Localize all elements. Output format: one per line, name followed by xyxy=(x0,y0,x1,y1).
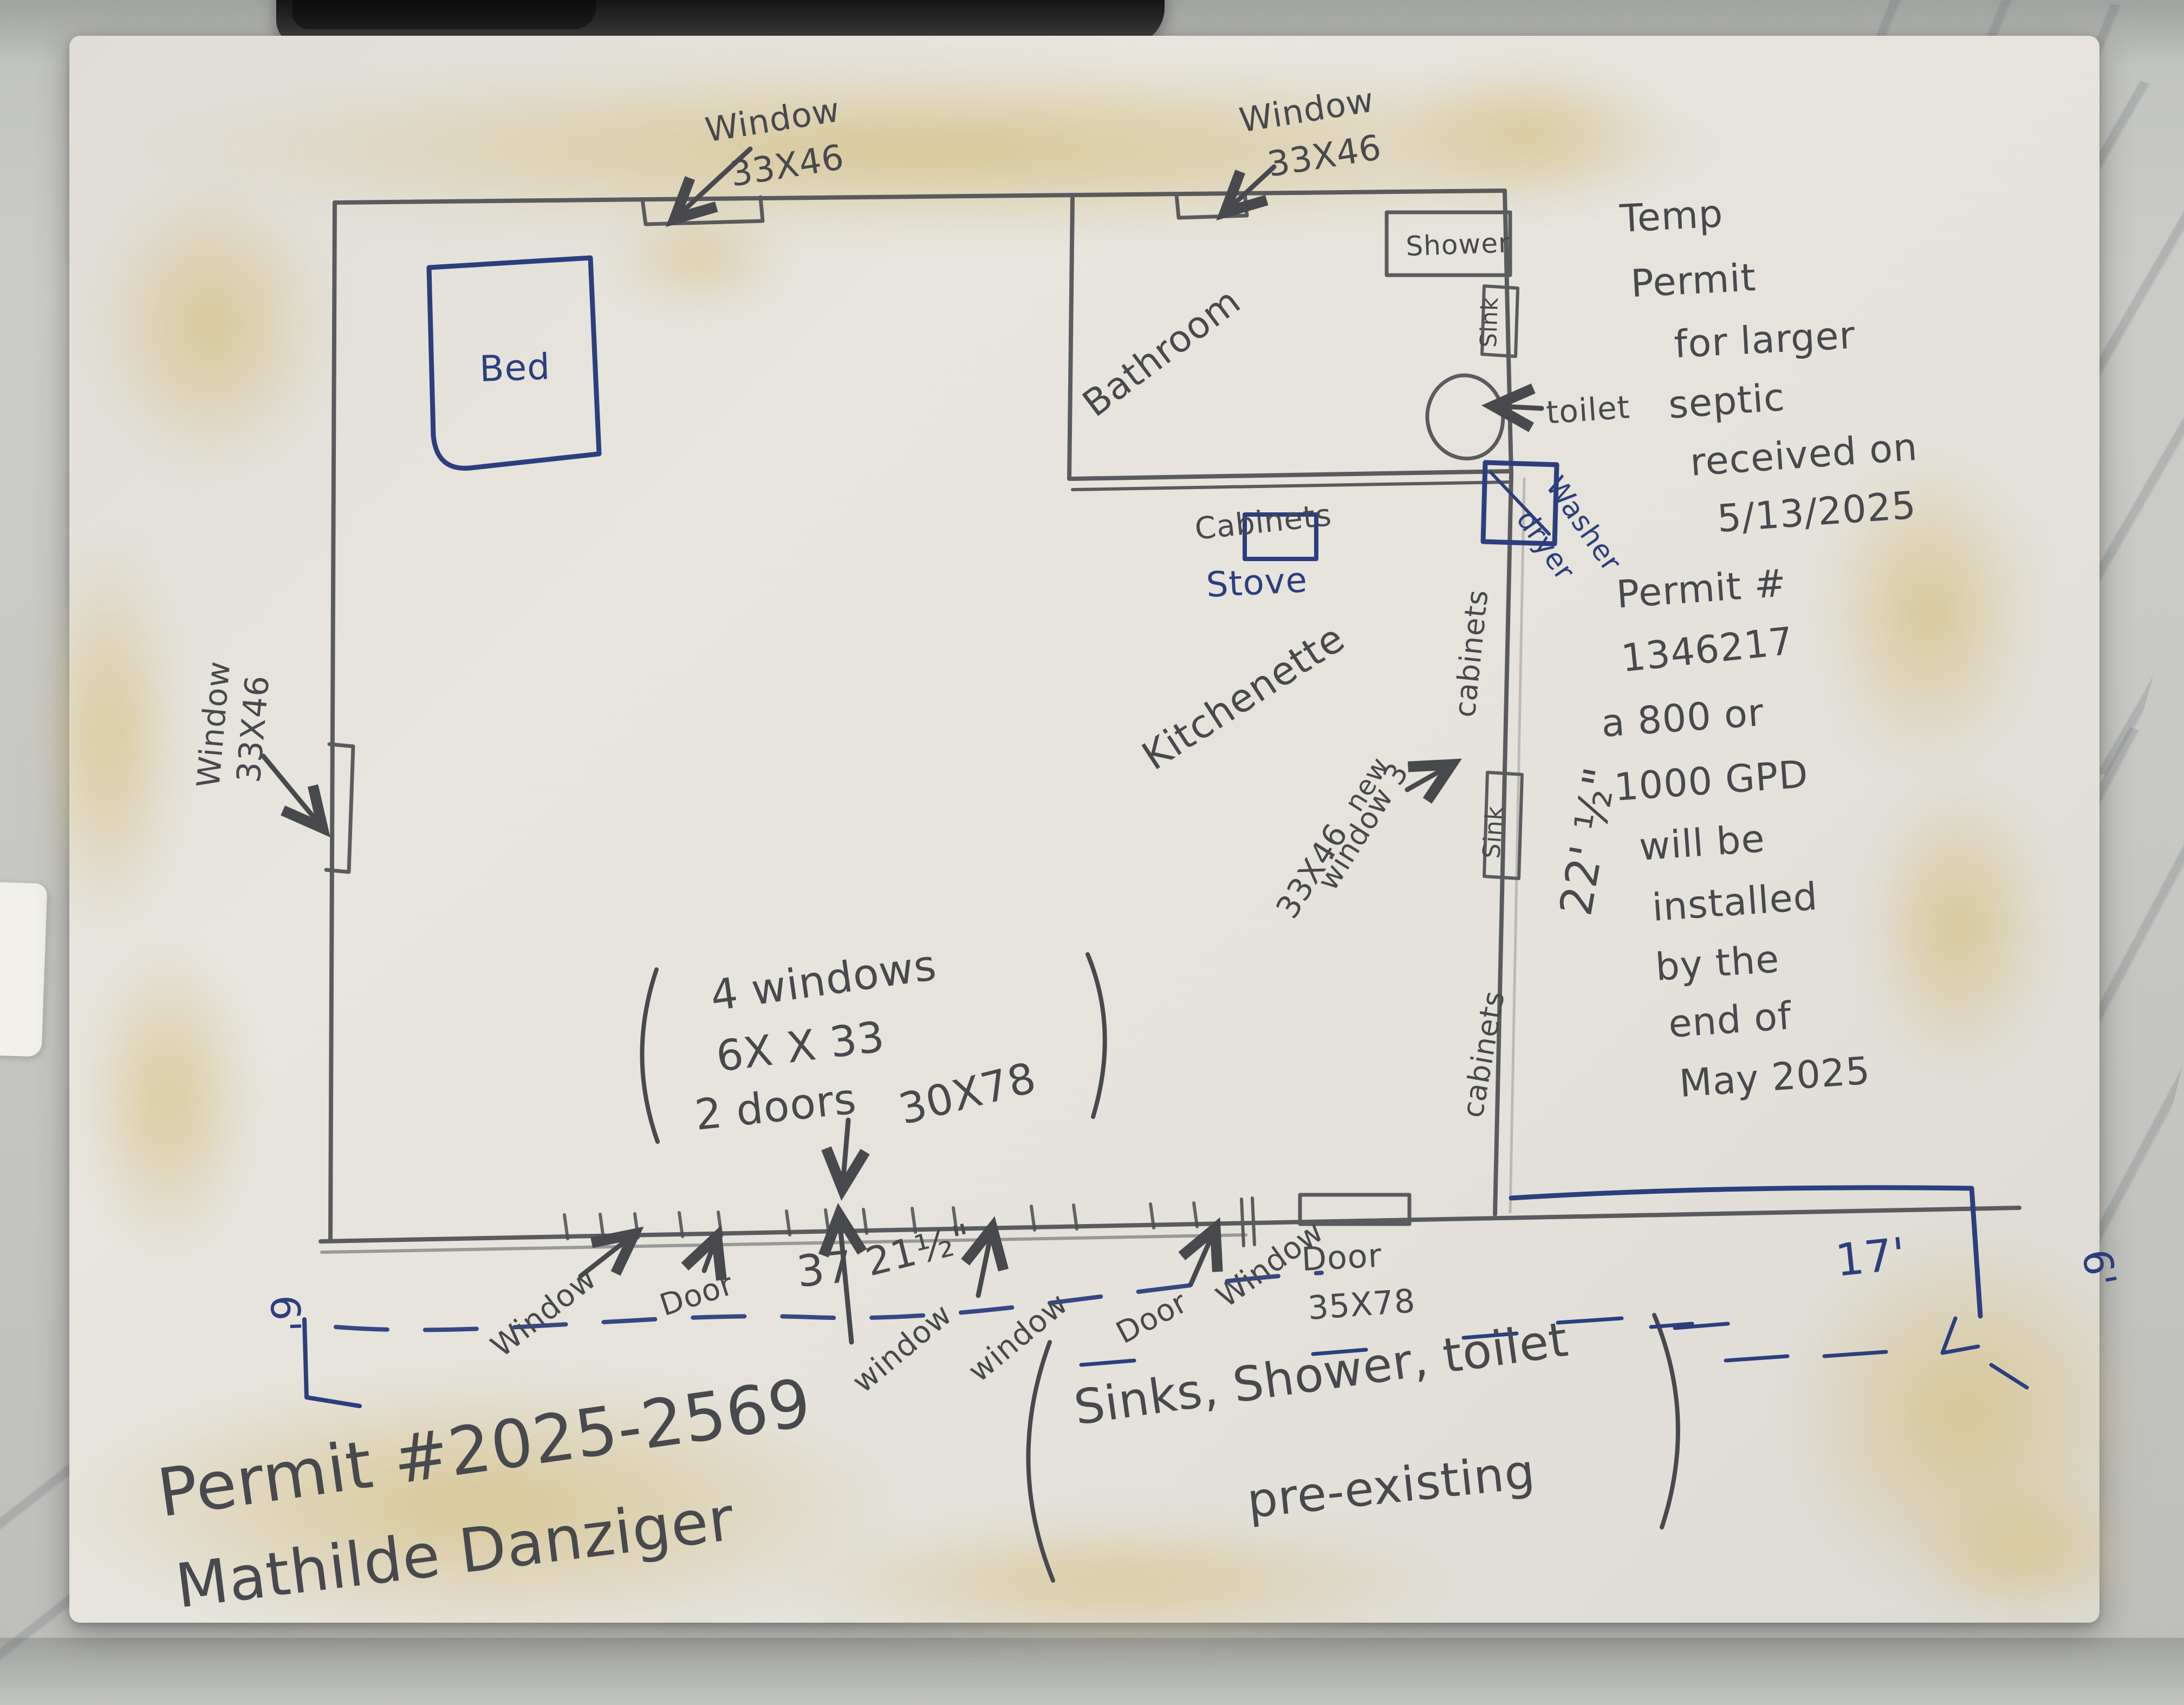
stove-label: Stove xyxy=(1205,560,1309,606)
septic-note-line-3: for larger xyxy=(1673,313,1857,367)
blue-hatch-6 xyxy=(1991,1365,2027,1388)
blue-dash-preexisting-1 xyxy=(1081,1361,1134,1365)
dimension-37: 37 xyxy=(794,1241,855,1297)
permit-note-line-6: installed xyxy=(1650,874,1819,930)
summary-paren-right xyxy=(1088,954,1105,1117)
permit-note-line-5: will be xyxy=(1637,816,1766,869)
bed-label: Bed xyxy=(479,346,551,390)
arrow-toilet xyxy=(1498,406,1542,408)
photo-of-floor-plan-sketch: { "colors": { "pencil": "#47494d", "pen"… xyxy=(0,0,2184,1638)
septic-note-line-1: Temp xyxy=(1618,191,1725,241)
dimension-6ft-left: 6' xyxy=(261,1294,309,1333)
septic-note-line-4: septic xyxy=(1667,375,1786,427)
floor-plan-drawing: Window 33X46 Window 33X46 Window 33X46 B… xyxy=(0,0,2184,1638)
septic-note-line-5: received on xyxy=(1688,425,1919,485)
arrow-summary-down xyxy=(843,1120,848,1184)
summary-line-3: 2 doors xyxy=(693,1075,859,1140)
summary-paren-left xyxy=(642,969,658,1142)
bathroom-label: Bathroom xyxy=(1075,280,1249,426)
bottom-door-2-label: Door xyxy=(1110,1285,1193,1351)
blue-hatch-3 xyxy=(1726,1356,1787,1361)
septic-note-line-6: 5/13/2025 xyxy=(1715,483,1917,541)
bottom-door-3-label: Door xyxy=(1301,1237,1383,1279)
permit-note-line-8: end of xyxy=(1667,993,1793,1046)
blue-hatch-5 xyxy=(1942,1318,1978,1353)
summary-line-2: 6X X 33 xyxy=(713,1012,887,1081)
permit-note-line-7: by the xyxy=(1654,936,1780,990)
bathroom-sink-label: Sink xyxy=(1475,296,1503,348)
bottom-window-3-label: window xyxy=(961,1286,1075,1389)
permit-note-line-2: 1346217 xyxy=(1619,619,1796,681)
cabinets-label: Cabinets xyxy=(1193,498,1334,547)
septic-note-line-2: Permit xyxy=(1630,255,1757,306)
toilet-bowl xyxy=(1427,375,1503,459)
bottom-window-2-label: window xyxy=(846,1297,959,1400)
blue-hatch-4 xyxy=(1824,1352,1886,1356)
cabinets-side-lower-label: cabinets xyxy=(1455,988,1511,1120)
bottom-window-1-label: Window xyxy=(485,1261,603,1364)
bathroom-wall-horizontal-2 xyxy=(1072,482,1510,490)
door-jamb-tick-2 xyxy=(1252,1198,1254,1245)
door-jamb-tick-1 xyxy=(1241,1199,1244,1246)
window-top-left-size: 33X46 xyxy=(727,138,847,195)
dimension-17ft: 17' xyxy=(1833,1228,1908,1287)
right-wall-faint-line xyxy=(1510,479,1524,1212)
arrow-bottom-door-2 xyxy=(1191,1233,1213,1285)
bathroom-wall-horizontal xyxy=(1071,471,1511,479)
kitchen-sink-label: Sink xyxy=(1478,805,1509,860)
blue-right-section-outline xyxy=(1511,1188,1980,1316)
arrow-bottom-window-pair xyxy=(978,1233,991,1296)
left-wall xyxy=(330,203,335,1240)
shower-label: Shower xyxy=(1405,227,1510,262)
preexisting-paren-left xyxy=(1028,1342,1053,1580)
cabinets-side-upper-label: cabinets xyxy=(1447,588,1494,719)
blue-left-extension xyxy=(304,1319,360,1406)
kitchenette-label: Kitchenette xyxy=(1134,615,1353,779)
permit-note-line-1: Permit # xyxy=(1615,561,1787,617)
bottom-door-3-size: 35X78 xyxy=(1306,1282,1416,1327)
top-wall xyxy=(335,191,1505,203)
dimension-6ft-right: 6' xyxy=(2072,1246,2125,1291)
window-top-right-size: 33X46 xyxy=(1265,128,1384,185)
arrow-window-left xyxy=(263,756,320,824)
arrow-window-top-right xyxy=(1228,167,1274,209)
dimension-21-half: 21½" xyxy=(861,1215,977,1285)
permit-note-line-3: a 800 or xyxy=(1600,690,1765,746)
preexisting-paren-right xyxy=(1654,1315,1678,1527)
toilet-label: toilet xyxy=(1545,388,1631,431)
summary-line-1: 4 windows xyxy=(707,941,939,1021)
window-notch-top-right xyxy=(1176,193,1247,218)
permit-note-line-4: 1000 GPD xyxy=(1613,752,1810,810)
permit-note-line-9: May 2025 xyxy=(1678,1049,1871,1106)
preexisting-line-2: pre-existing xyxy=(1244,1443,1537,1529)
window-left-note: Window 33X46 xyxy=(190,659,278,792)
summary-line-4: 30X78 xyxy=(894,1053,1041,1134)
blue-hatch-1 xyxy=(1558,1318,1622,1323)
bathroom-wall-vertical xyxy=(1069,198,1072,479)
